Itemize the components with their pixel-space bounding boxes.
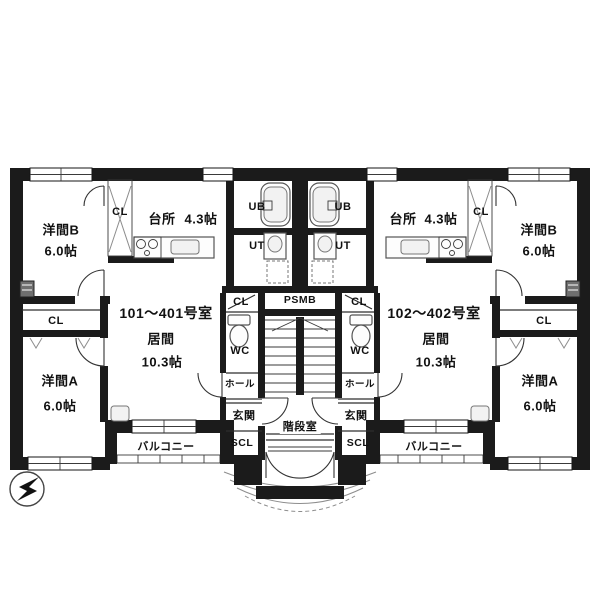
label-psmb: PSMB [284, 294, 316, 306]
label-hall-left: ホール [225, 376, 255, 390]
label-kitchen-area-right: 4.3帖 [424, 209, 457, 228]
label-balcony-right: バルコニー [405, 438, 462, 454]
label-room-a-area-left: 6.0帖 [43, 396, 76, 415]
labels-layer: 洋間B 6.0帖 CL 台所 4.3帖 UB UT CL WC ホール 玄関 S… [0, 0, 600, 600]
label-room-a-area-right: 6.0帖 [523, 396, 556, 415]
label-wc-right: WC [350, 345, 369, 357]
label-ut-left: UT [249, 240, 265, 252]
label-unit-no-left: 101〜401号室 [119, 303, 212, 323]
label-room-a-left: 洋間A [42, 371, 79, 390]
floor-plan: 洋間B 6.0帖 CL 台所 4.3帖 UB UT CL WC ホール 玄関 S… [0, 0, 600, 600]
label-cl-mid-left: CL [233, 296, 249, 308]
label-living-right: 居間 [422, 329, 449, 348]
label-room-b-area-left: 6.0帖 [44, 241, 77, 260]
label-scl-right: SCL [347, 437, 370, 449]
label-room-b-area-right: 6.0帖 [522, 241, 555, 260]
label-kitchen-right: 台所 [389, 209, 416, 228]
label-cl-mid-right: CL [351, 296, 367, 308]
label-entrance-right: 玄関 [345, 407, 368, 423]
label-entrance-left: 玄関 [233, 407, 256, 423]
label-cl-top-right: CL [473, 206, 489, 218]
label-cl-top-left: CL [112, 206, 128, 218]
label-ub-left: UB [249, 201, 266, 213]
label-stairwell: 階段室 [280, 418, 321, 434]
label-room-a-right: 洋間A [522, 371, 559, 390]
label-wc-left: WC [230, 345, 249, 357]
label-unit-no-right: 102〜402号室 [387, 303, 480, 323]
label-kitchen-left: 台所 [148, 209, 175, 228]
label-living-area-left: 10.3帖 [142, 352, 183, 371]
label-scl-left: SCL [231, 437, 254, 449]
label-balcony-left: バルコニー [137, 438, 194, 454]
label-ut-right: UT [335, 240, 351, 252]
label-room-b-left: 洋間B [43, 220, 80, 239]
label-cl-bottom-right: CL [536, 315, 552, 327]
label-hall-right: ホール [345, 376, 375, 390]
label-ub-right: UB [335, 201, 352, 213]
label-kitchen-area-left: 4.3帖 [184, 209, 217, 228]
label-room-b-right: 洋間B [521, 220, 558, 239]
label-living-area-right: 10.3帖 [416, 352, 457, 371]
label-living-left: 居間 [147, 329, 174, 348]
label-cl-bottom-left: CL [48, 315, 64, 327]
